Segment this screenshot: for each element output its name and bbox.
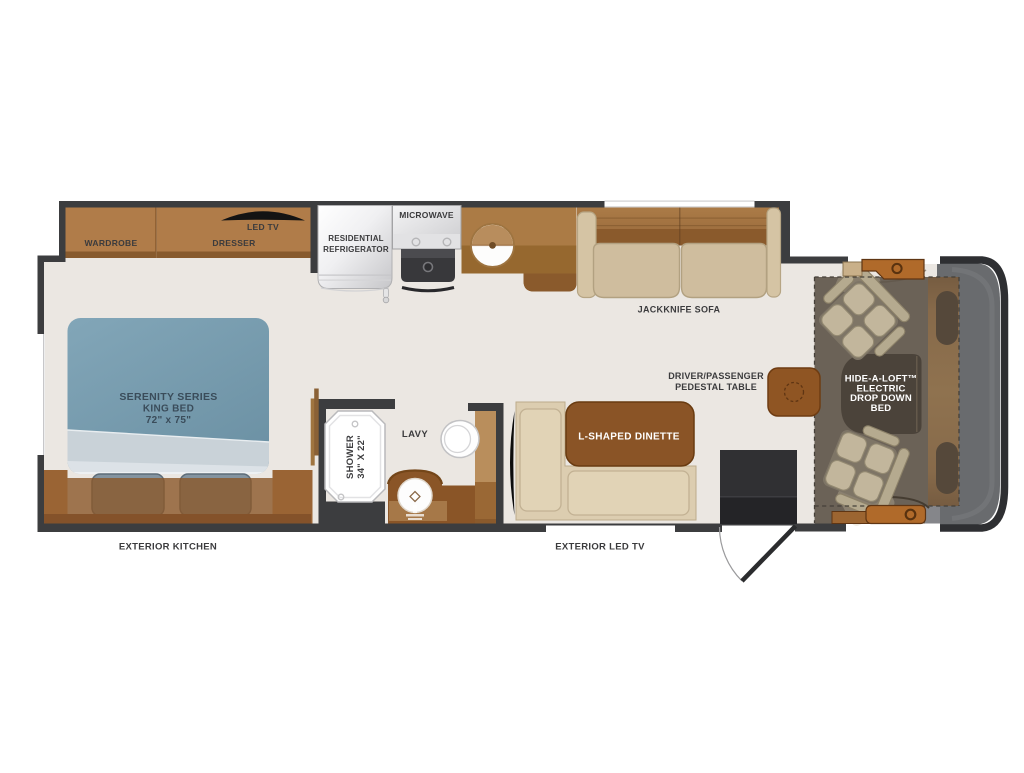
svg-text:DRIVER/PASSENGER: DRIVER/PASSENGER xyxy=(668,371,764,381)
svg-text:KING BED: KING BED xyxy=(143,404,194,415)
svg-text:72" x 75": 72" x 75" xyxy=(146,415,192,426)
svg-text:EXTERIOR KITCHEN: EXTERIOR KITCHEN xyxy=(119,542,217,553)
svg-text:RESIDENTIAL: RESIDENTIAL xyxy=(328,234,384,243)
svg-text:MICROWAVE: MICROWAVE xyxy=(399,210,454,220)
svg-text:L-SHAPED DINETTE: L-SHAPED DINETTE xyxy=(578,432,679,443)
svg-text:DRESSER: DRESSER xyxy=(212,238,255,248)
svg-text:REFRIGERATOR: REFRIGERATOR xyxy=(323,245,389,254)
svg-text:34" X 22": 34" X 22" xyxy=(356,435,367,479)
svg-text:EXTERIOR LED TV: EXTERIOR LED TV xyxy=(555,542,645,553)
svg-text:SHOWER: SHOWER xyxy=(345,435,356,479)
svg-text:JACKKNIFE SOFA: JACKKNIFE SOFA xyxy=(638,305,721,315)
svg-text:WARDROBE: WARDROBE xyxy=(85,238,138,248)
svg-text:SERENITY SERIES: SERENITY SERIES xyxy=(119,391,217,403)
svg-text:PEDESTAL TABLE: PEDESTAL TABLE xyxy=(675,382,757,392)
svg-text:LED TV: LED TV xyxy=(247,222,279,232)
svg-text:LAVY: LAVY xyxy=(402,429,428,440)
svg-text:BED: BED xyxy=(871,403,892,414)
